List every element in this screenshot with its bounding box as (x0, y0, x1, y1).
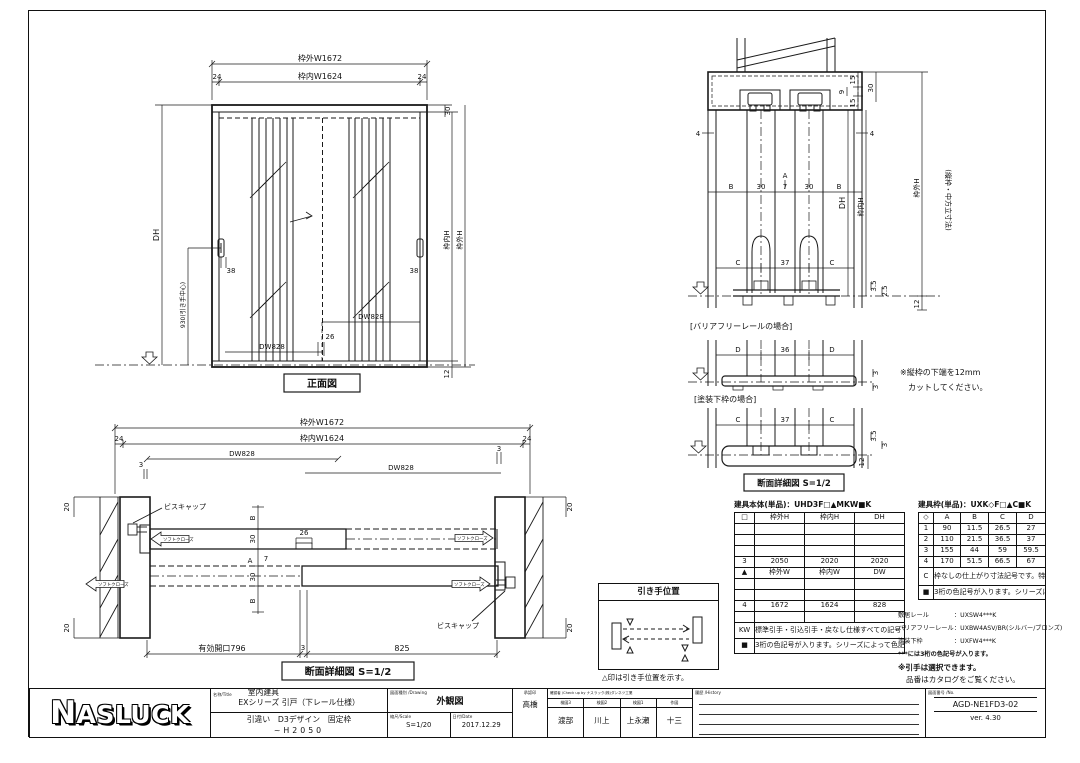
color-code-note: ***には3桁の色記号が入ります。 (898, 648, 1048, 661)
cell: 2020 (855, 557, 905, 568)
cell: 1624 (805, 601, 855, 612)
dim-label: 30 (249, 573, 257, 582)
screw-cap-label: ビスキャップ (437, 621, 479, 630)
date-value: 2017.12.29 (451, 719, 513, 731)
table-row: ■ 3桁の色記号が入ります。シリーズによって色記号が設定されています。 (919, 586, 1046, 600)
table-row: 4 1672 1624 828 (735, 601, 905, 612)
cell: 2020 (805, 557, 855, 568)
dim-label: DW828 (259, 343, 285, 351)
dim-label: 30 (805, 183, 814, 191)
floor-arrow-icon (693, 368, 708, 380)
cell: DW (855, 568, 905, 579)
door-plan-section (150, 529, 498, 586)
dim-label: 825 (394, 644, 409, 653)
dim-label: 37 (781, 259, 790, 267)
dim-label: 3 (872, 371, 880, 375)
dim-label: 20 (63, 624, 71, 633)
dim-label: 12 (913, 300, 921, 309)
design-slashes (250, 162, 389, 318)
dim-label: 30 (249, 535, 257, 544)
cell: B (961, 513, 989, 524)
dim-label: 26 (300, 529, 309, 537)
handle-position-diagram (599, 601, 716, 667)
soft-close-label: ソフトクローズ (454, 581, 485, 588)
table-row: □ 枠外H 枠内H DH (735, 513, 905, 524)
dim-label: DH (838, 197, 847, 209)
dim-label: B (837, 183, 842, 191)
dim-label: DW828 (388, 464, 414, 472)
checker-name: 上永瀬 (621, 708, 656, 734)
screw-cap-label: ビスキャップ (164, 502, 206, 511)
dim-label: 26 (326, 333, 335, 341)
vertical-section-view (688, 38, 940, 491)
checker-col: 検図1 上永瀬 (621, 699, 657, 737)
dim-label: 3 (139, 461, 143, 469)
dim-label: DW828 (358, 313, 384, 321)
dim-label: 24 (418, 73, 427, 81)
cell: ■ (735, 639, 755, 654)
table-row: 190 11.526.5 27 (919, 524, 1046, 535)
dim-label: 36 (781, 346, 790, 354)
floor-arrow-icon (693, 282, 708, 294)
dim-label: 3.5 (870, 280, 878, 291)
table-row (735, 546, 905, 557)
dim-label: C (830, 259, 835, 267)
vertical-section-dims (702, 72, 928, 469)
dim-label: 24 (213, 73, 222, 81)
dim-label: B (249, 515, 257, 520)
scale-value: S=1/20 (388, 719, 450, 731)
rail1-label: [バリアフリーレールの場合] (690, 321, 792, 331)
cut-note: カットしてください。 (908, 383, 988, 392)
door-design-lines (252, 118, 390, 361)
dim-label: 30 (867, 84, 875, 93)
floor-arrow-icon (691, 441, 706, 453)
dim-label: B (249, 598, 257, 603)
dim-label: 3 (497, 445, 501, 453)
cut-note: ※縦枠の下端を12mm (900, 367, 981, 377)
title-block: NASLUCK 名称/Title 室内建具 EXシリーズ 引戸（下レール仕様） … (29, 688, 1046, 738)
painted-sill-note: 塗装下枠：UXFW4***K (898, 635, 1048, 648)
dim-label: 枠外W1672 (298, 53, 342, 63)
dim-label: C (830, 416, 835, 424)
title-name-cell: 名称/Title 室内建具 EXシリーズ 引戸（下レール仕様） 引違い D3デザ… (211, 689, 388, 737)
table-row: 3 2050 2020 2020 (735, 557, 905, 568)
door-right (693, 617, 702, 643)
check-header: 確認者 /Check up by ナスラック(株)ダンネツ工業 (548, 689, 692, 699)
drawing-name-3: 引違い D3デザイン 固定枠 (211, 713, 387, 726)
dim-label: 枠外W1672 (300, 417, 344, 427)
cell: 枠内H (805, 513, 855, 524)
handle-marker-up-triangle (682, 655, 688, 661)
soft-close-label: ソフトクローズ (457, 535, 488, 542)
dim-label: 4 (870, 130, 875, 138)
checker-name: 渡部 (548, 708, 583, 734)
sill-rail-note: 敷居レール：UXSW4***K (898, 609, 1048, 622)
handle-marker-up-triangle (627, 647, 633, 653)
dim-label: 3 (881, 443, 889, 447)
plan-section-view (74, 424, 566, 680)
approval-value: 高橋 (513, 695, 547, 715)
drawing-name-2: EXシリーズ 引戸（下レール仕様） (211, 697, 387, 709)
dim-label: 20 (566, 624, 574, 633)
dim-label: 4 (696, 130, 701, 138)
table-row: 4170 51.566.5 67 (919, 557, 1046, 568)
rail2-label: [塗装下枠の場合] (694, 394, 756, 404)
dim-label: 37 (781, 416, 790, 424)
catalog-note: 品番はカタログをご覧ください。 (898, 674, 1048, 686)
table-row: ◇ A B C D (919, 513, 1046, 524)
soft-close-arrow (86, 531, 493, 591)
dim-label: 有効開口796 (198, 643, 245, 653)
table-row: ■ 3桁の色記号が入ります。シリーズによって色記号が設定されています。 (735, 639, 905, 654)
dim-label: 3 (872, 385, 880, 389)
drawing-number-cell: 図面番号 /No. AGD-NE1FD3-02 ver. 4.30 (926, 689, 1045, 737)
dim-label: 930(引き手中心) (179, 282, 187, 328)
cell: DH (855, 513, 905, 524)
cell: 4 (735, 601, 755, 612)
cell: KW (735, 623, 755, 639)
dim-label: 7 (783, 183, 787, 191)
drawing-name-4: ~H2050 (211, 726, 387, 736)
frame-table: 建具枠(単品)：UXK◇F□▲C■K ◇ A B C D 190 11.526.… (918, 499, 1046, 600)
drawing-number: AGD-NE1FD3-02 (934, 697, 1037, 712)
checker-header: 検図2 (584, 699, 619, 708)
drawing-version: ver. 4.30 (926, 712, 1045, 725)
cell: 枠外H (755, 513, 805, 524)
checker-col: 作図 十三 (657, 699, 692, 737)
dim-label: DW828 (229, 450, 255, 458)
front-view-caption: 正面図 (307, 378, 337, 390)
drawing-type-value: 外観図 (388, 695, 512, 709)
frame-table-title: 建具枠(単品)：UXK◇F□▲C■K (918, 499, 1046, 510)
cell: 2050 (755, 557, 805, 568)
name-header: 名称/Title (211, 691, 234, 697)
dim-label: 枠内H (442, 230, 451, 249)
dim-label: DH (152, 229, 161, 241)
dim-label: 38 (227, 267, 236, 275)
plan-center-dims (252, 505, 312, 614)
dim-label: 枠内H (856, 197, 865, 216)
cell: ◇ (919, 513, 934, 524)
front-view (95, 60, 475, 392)
table-row: 3155 4459 59.5 (919, 546, 1046, 557)
cell: □ (735, 513, 755, 524)
floor-arrow-icon (142, 352, 157, 364)
handle-select-note: ※引手は選択できます。 (898, 661, 1048, 674)
plan-dimensions (74, 424, 566, 638)
checker-name: 川上 (584, 708, 619, 734)
dim-note: (縦枠・中方立寸法) (944, 169, 953, 231)
dim-label: 3 (301, 644, 305, 652)
dim-label: 30 (444, 107, 452, 116)
plan-caption: 断面詳細図 S=1/2 (305, 665, 392, 678)
table-row (735, 535, 905, 546)
screw-cap (128, 508, 515, 621)
handle-position-box: 引き手位置 (598, 583, 719, 670)
checker-name: 十三 (657, 708, 692, 734)
soft-close-label: ソフトクローズ (163, 536, 194, 543)
dim-label: C (736, 416, 741, 424)
checker-header: 検図3 (548, 699, 583, 708)
table-row: ▲ 枠外W 枠内W DW (735, 568, 905, 579)
door-handle (218, 239, 423, 257)
body-table-title: 建具本体(単品)：UHD3F□▲MKW■K (734, 499, 906, 510)
dim-label: 枠内W1624 (298, 71, 342, 81)
dim-label: 9 (838, 90, 846, 94)
dim-label: 2.5 (881, 285, 889, 296)
door-left (612, 623, 621, 649)
history-cell: 履歴 /History (693, 689, 926, 737)
dim-label: 枠内W1624 (300, 433, 344, 443)
dim-label: 30 (757, 183, 766, 191)
dim-label: 24 (115, 435, 124, 443)
logo-text: NASLUCK (50, 695, 190, 731)
wall-above (737, 38, 835, 72)
dim-label: D (735, 346, 740, 354)
checkers-cell: 確認者 /Check up by ナスラック(株)ダンネツ工業 検図3 渡部 検… (548, 689, 693, 737)
table-note: 3桁の色記号が入ります。シリーズによって色記号が設定されています。 (755, 639, 905, 654)
table-row: C 枠なしの仕上がり寸法記号です。特あり仕様設定はありません。敷居レール・バリア… (919, 568, 1046, 586)
dim-label: 7 (264, 555, 268, 563)
dim-label: C (736, 259, 741, 267)
dim-label: 38 (410, 267, 419, 275)
dim-label: D (829, 346, 834, 354)
drawing-name-1: 室内建具 (248, 689, 279, 697)
table-row: KW 標準引手・引込引手・戻なし仕様すべての記号です。特あり仕様設定はありません… (735, 623, 905, 639)
cell: C (989, 513, 1017, 524)
barrier-free-rail-note: バリアフリーレール：UXBW4ASV/BR(シルバー/ブロンズ) (898, 622, 1048, 635)
table-row (735, 590, 905, 601)
table-note: 3桁の色記号が入ります。シリーズによって色記号が設定されています。 (934, 586, 1046, 600)
jamb-section (120, 497, 525, 638)
handle-position-note: △印は引き手位置を示す。 (602, 672, 688, 683)
table-row (735, 579, 905, 590)
dim-label: 12 (443, 370, 451, 379)
handle-marker-down-triangle (627, 619, 633, 625)
table-note: 枠なしの仕上がり寸法記号です。特あり仕様設定はありません。敷居レール・バリアフリ… (934, 568, 1046, 586)
handle-position-title: 引き手位置 (599, 584, 718, 601)
handle-marker-down-triangle (682, 645, 688, 651)
rail-notes: 敷居レール：UXSW4***K バリアフリーレール：UXBW4ASV/BR(シル… (898, 609, 1048, 686)
body-table: 建具本体(単品)：UHD3F□▲MKW■K □ 枠外H 枠内H DH 3 205… (734, 499, 906, 654)
dim-label: A (783, 172, 788, 180)
table-row: 2110 21.536.5 37 (919, 535, 1046, 546)
table-row (735, 612, 905, 623)
drawing-type-cell: 図面種別 /Drawing 外観図 縮尺/Scale S=1/20 日付/Dat… (388, 689, 513, 737)
dim-label: 15 (849, 76, 857, 85)
number-header: 図面番号 /No. (926, 689, 1045, 695)
company-logo: NASLUCK (30, 689, 211, 737)
dim-label: 20 (566, 503, 574, 512)
cell: 3 (735, 557, 755, 568)
dim-label: 24 (523, 435, 532, 443)
checker-col: 検図3 渡部 (548, 699, 584, 737)
table-note: 標準引手・引込引手・戻なし仕様すべての記号です。特あり仕様設定はありません。引手… (755, 623, 905, 639)
dim-label: 15 (849, 99, 857, 108)
checker-col: 検図2 川上 (584, 699, 620, 737)
dim-label: 枠外H (455, 230, 464, 249)
soft-close-label: ソフトクローズ (98, 581, 129, 588)
cell: A (934, 513, 961, 524)
dim-label: B (729, 183, 734, 191)
approval-cell: 承認印 高橋 (513, 689, 548, 737)
dim-label: 20 (63, 503, 71, 512)
section-caption: 断面詳細図 S=1/2 (757, 478, 831, 489)
dim-label: 3.5 (870, 430, 878, 441)
cell: 枠外W (755, 568, 805, 579)
cell: 828 (855, 601, 905, 612)
dim-label: 枠外H (912, 178, 921, 197)
checker-header: 作図 (657, 699, 692, 708)
cell: 枠内W (805, 568, 855, 579)
cell: D (1017, 513, 1046, 524)
dim-label: 12 (858, 458, 866, 467)
drawing-sheet: 枠外W1672 24 枠内W1624 24 30 枠内H 枠外H 12 DH 9… (0, 0, 1080, 763)
cell: ▲ (735, 568, 755, 579)
checker-header: 検図1 (621, 699, 656, 708)
section-fragment-1 (688, 110, 940, 308)
cell: 1672 (755, 601, 805, 612)
dim-label: A (248, 557, 253, 565)
front-dimensions (95, 60, 475, 378)
table-row (735, 524, 905, 535)
